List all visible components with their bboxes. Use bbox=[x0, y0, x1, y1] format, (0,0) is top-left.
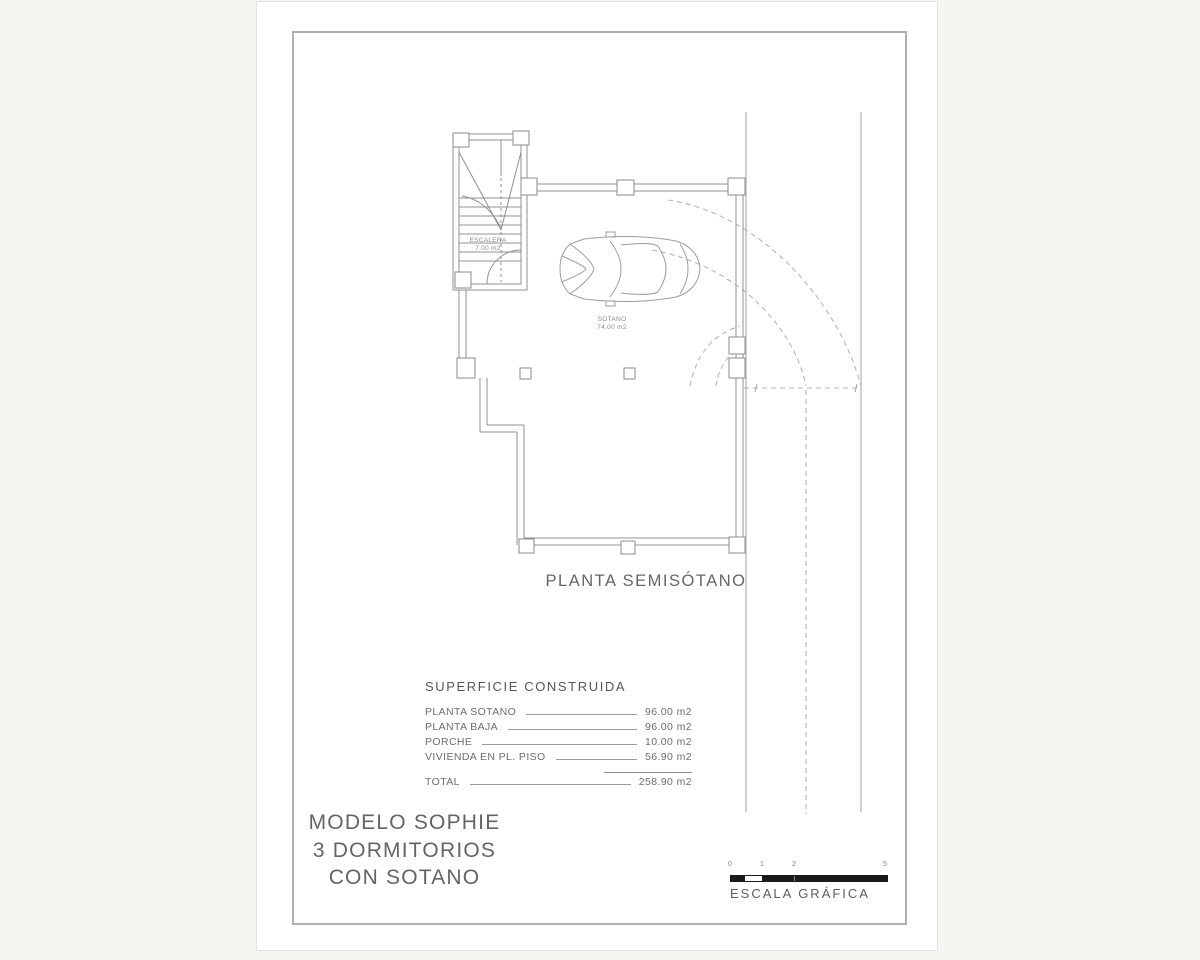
stair-room-label: ESCALERA 7.00 m2 bbox=[462, 237, 514, 253]
walls bbox=[453, 134, 744, 545]
row-label: PLANTA BAJA bbox=[425, 721, 498, 733]
garage-room-area: 74.00 m2 bbox=[583, 324, 641, 332]
leader-line bbox=[526, 713, 637, 715]
row-value: 96.00 m2 bbox=[645, 706, 692, 718]
graphic-scale: 0 1 2 5 ESCALA GRÁFICA bbox=[730, 861, 892, 907]
drawing-sheet: ESCALERA 7.00 m2 SÓTANO 74.00 m2 PLANTA … bbox=[0, 0, 1200, 960]
leader-line bbox=[470, 783, 631, 785]
scale-tick: 1 bbox=[757, 861, 767, 868]
plan-title: PLANTA SEMISÓTANO bbox=[540, 572, 752, 591]
row-label: VIVIENDA EN PL. PISO bbox=[425, 751, 546, 763]
table-row: PLANTA SOTANO 96.00 m2 bbox=[425, 706, 692, 721]
table-row: PORCHE 10.00 m2 bbox=[425, 736, 692, 751]
table-row: VIVIENDA EN PL. PISO 56.90 m2 bbox=[425, 751, 692, 766]
row-label: PORCHE bbox=[425, 736, 472, 748]
garage-room-label: SÓTANO 74.00 m2 bbox=[583, 316, 641, 332]
stair-room-area: 7.00 m2 bbox=[462, 245, 514, 253]
scale-caption: ESCALA GRÁFICA bbox=[730, 886, 870, 901]
scale-tick: 2 bbox=[789, 861, 799, 868]
scale-bar-notch bbox=[794, 876, 795, 881]
leader-line bbox=[508, 728, 637, 730]
door-swing-arc bbox=[487, 250, 521, 284]
stair-treads bbox=[459, 140, 521, 282]
plot-boundary-lines bbox=[746, 112, 861, 812]
area-table-heading: SUPERFICIE CONSTRUIDA bbox=[425, 679, 692, 694]
scale-bar bbox=[730, 875, 888, 882]
table-total-row: TOTAL 258.90 m2 bbox=[425, 776, 692, 791]
stair-room-name: ESCALERA bbox=[462, 237, 514, 245]
scale-tick: 0 bbox=[725, 861, 735, 868]
leader-line bbox=[556, 758, 637, 760]
columns bbox=[453, 131, 745, 554]
car-icon bbox=[560, 232, 700, 306]
floor-plan-drawing bbox=[0, 0, 1200, 960]
garage-room-name: SÓTANO bbox=[583, 316, 641, 324]
model-caption: MODELO SOPHIE 3 DORMITORIOS CON SOTANO bbox=[292, 809, 517, 892]
total-value: 258.90 m2 bbox=[639, 776, 692, 788]
row-value: 96.00 m2 bbox=[645, 721, 692, 733]
row-value: 10.00 m2 bbox=[645, 736, 692, 748]
scale-bar-segment bbox=[745, 876, 762, 881]
leader-line bbox=[482, 743, 637, 745]
table-row: PLANTA BAJA 96.00 m2 bbox=[425, 721, 692, 736]
total-sum-line bbox=[604, 772, 692, 773]
model-basement: CON SOTANO bbox=[292, 864, 517, 892]
scale-tick: 5 bbox=[880, 861, 890, 868]
model-bedrooms: 3 DORMITORIOS bbox=[292, 837, 517, 865]
total-label: TOTAL bbox=[425, 776, 460, 788]
row-value: 56.90 m2 bbox=[645, 751, 692, 763]
row-label: PLANTA SOTANO bbox=[425, 706, 516, 718]
model-name: MODELO SOPHIE bbox=[292, 809, 517, 837]
built-area-table: SUPERFICIE CONSTRUIDA PLANTA SOTANO 96.0… bbox=[425, 679, 692, 791]
